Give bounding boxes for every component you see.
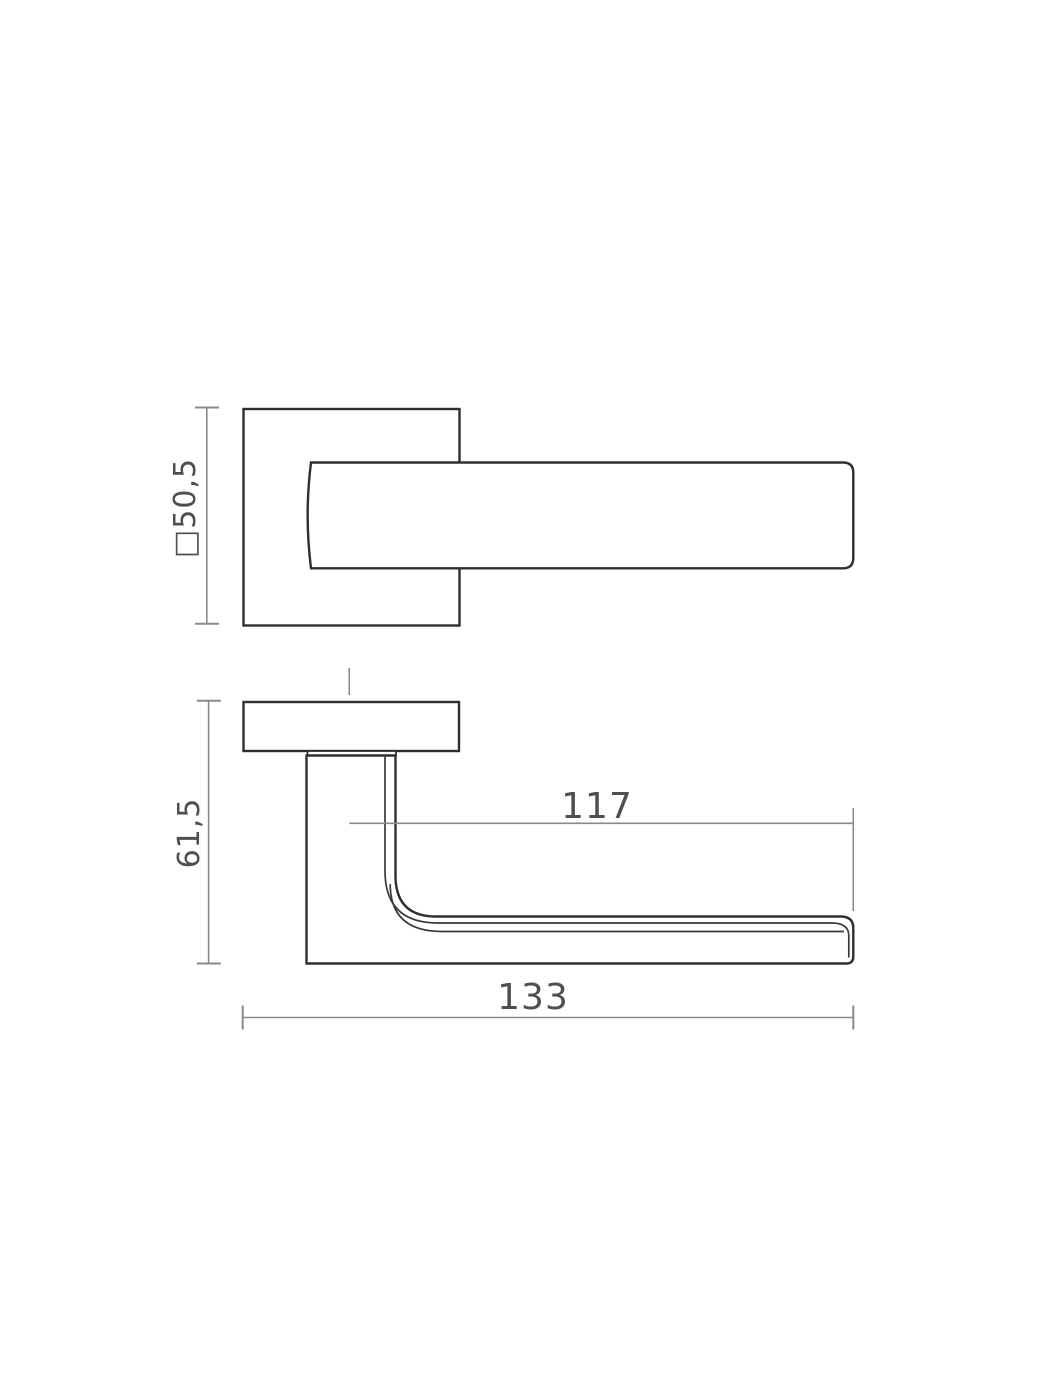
rosette-side-outline bbox=[244, 702, 460, 751]
door-handle-drawing-svg: □50,5 61,5 bbox=[0, 0, 1050, 1400]
rosette-size-label: □50,5 bbox=[168, 458, 203, 558]
lever-reach-label: 117 bbox=[561, 786, 633, 827]
dimension-overall-height: 61,5 bbox=[172, 701, 221, 964]
dimension-rosette-size: □50,5 bbox=[168, 408, 219, 624]
dimension-total-length: 133 bbox=[243, 977, 854, 1030]
side-view: 61,5 117 133 bbox=[172, 668, 853, 1030]
technical-drawing-canvas: □50,5 61,5 bbox=[0, 0, 1050, 1400]
total-length-label: 133 bbox=[497, 977, 569, 1018]
top-view: □50,5 bbox=[168, 408, 853, 626]
lever-front-outline bbox=[308, 463, 854, 569]
overall-height-label: 61,5 bbox=[172, 798, 207, 869]
dimension-lever-reach: 117 bbox=[349, 786, 853, 911]
